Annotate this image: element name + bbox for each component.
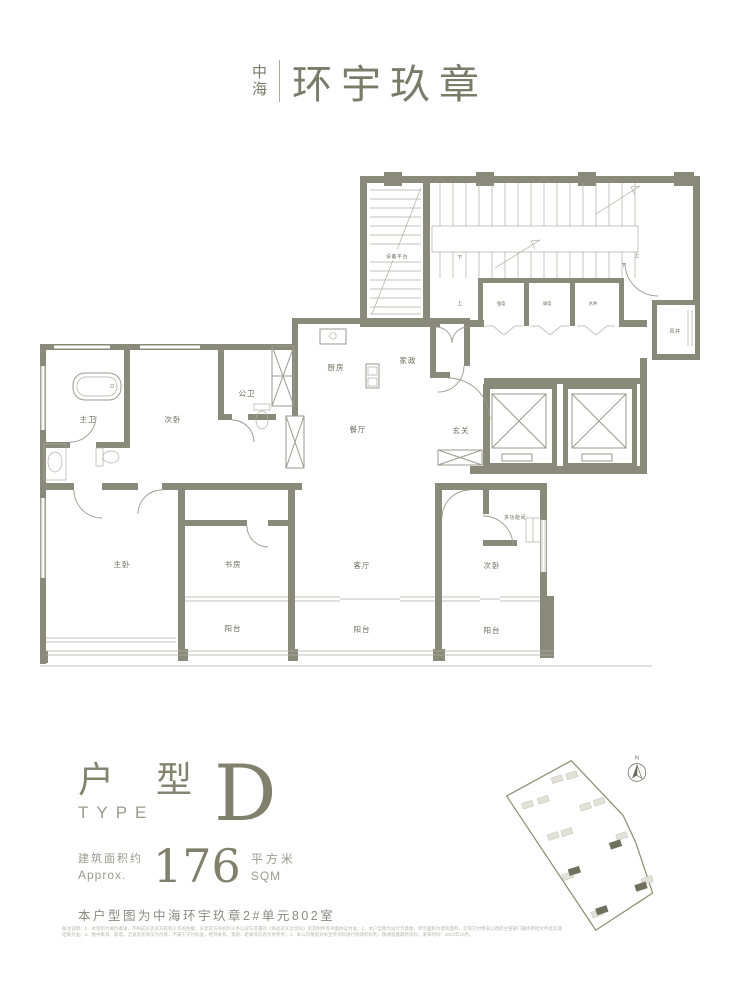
bathtub-icon [73, 373, 121, 400]
label-stair-down-left: 下 [457, 255, 463, 261]
shoe-cabinet [438, 450, 482, 465]
unit-note: 本户型图为中海环宇玖章2#单元802室 [78, 905, 398, 924]
equipment-platform [370, 188, 421, 314]
shaft-doors [485, 310, 692, 346]
label-stair-down-right: 下 [621, 263, 627, 269]
label-dining: 餐厅 [350, 425, 367, 434]
label-study: 书房 [225, 559, 242, 569]
label-equipment-platform: 设备平台 [386, 253, 408, 260]
label-master-bath: 主卫 [80, 414, 97, 424]
brand-name: 环宇玖章 [292, 52, 488, 110]
brand-logo-stack-top: 中 [252, 64, 267, 81]
area-label-cn: 建筑面积约 [78, 850, 143, 866]
label-master-bedroom: 主卧 [114, 559, 131, 569]
label-living: 客厅 [354, 560, 371, 570]
brand-logo-stack-bottom: 海 [252, 81, 267, 98]
site-boundary [507, 761, 653, 931]
toilet-hall-icon [96, 448, 119, 466]
label-multi-room: 多功能间 [504, 514, 526, 521]
room-labels: 主卫 次卧 公卫 厨房 家政 餐厅 玄关 主卧 书房 客厅 次卧 多功能间 阳台… [80, 252, 681, 635]
label-kitchen: 厨房 [328, 362, 345, 372]
area-unit-cn: 平方米 [251, 850, 296, 867]
elevator-right [572, 394, 626, 461]
label-housekeeping: 家政 [400, 355, 417, 365]
vanity-icon [44, 444, 66, 480]
north-label: N [635, 756, 639, 762]
site-buildings-light [522, 771, 654, 918]
title-block: 户 型 TYPE D 建筑面积约 Approx. 176 平方米 SQM 本户型… [78, 760, 398, 924]
label-weak-electric: 弱电 [543, 300, 552, 307]
label-stair-up-left: 上 [457, 300, 463, 307]
windows [40, 345, 652, 666]
stairs [432, 183, 640, 278]
wardrobe [526, 518, 541, 542]
label-bedroom-left: 次卧 [165, 414, 182, 424]
label-foyer: 玄关 [453, 425, 470, 435]
area-unit-en: SQM [251, 869, 296, 883]
label-balcony-left: 阳台 [225, 623, 242, 633]
label-strong-electric: 强电 [497, 300, 506, 307]
label-bedroom-right: 次卧 [484, 560, 501, 570]
brand-logo: 中 海 环宇玖章 [252, 52, 488, 110]
label-balcony-right: 阳台 [484, 625, 501, 635]
brand-logo-stack: 中 海 [252, 64, 267, 98]
label-water-shaft: 水井 [589, 300, 598, 307]
type-letter: D [214, 762, 277, 826]
area-label-en: Approx. [78, 868, 143, 882]
stove-icon [366, 364, 379, 388]
site-map: N [487, 745, 683, 945]
label-stair-up-right: 上 [634, 252, 640, 259]
label-balcony-mid: 阳台 [354, 624, 371, 634]
label-air-shaft: 风井 [669, 328, 680, 335]
label-public-bath: 公卫 [239, 389, 256, 398]
elevator-left [492, 394, 546, 461]
floorplan-poster: { "brand": { "logo_stack_top": "中", "log… [0, 0, 740, 1008]
duct-hatch [272, 346, 294, 406]
kitchen-sink-icon [320, 329, 346, 344]
cabinet-hatch [286, 416, 304, 468]
type-label-cn: 户 型 [78, 760, 208, 800]
compass-icon: N [628, 756, 646, 782]
fine-print: 备注说明：1、本资料为要约邀请，不构成买卖双方权利义务的依据，买卖双方的权利义务… [62, 926, 562, 938]
floor-plan: 主卫 次卧 公卫 厨房 家政 餐厅 玄关 主卧 书房 客厅 次卧 多功能间 阳台… [40, 168, 700, 673]
logo-divider [279, 60, 280, 102]
type-label-en: TYPE [78, 803, 208, 823]
area-value: 176 [153, 846, 241, 886]
